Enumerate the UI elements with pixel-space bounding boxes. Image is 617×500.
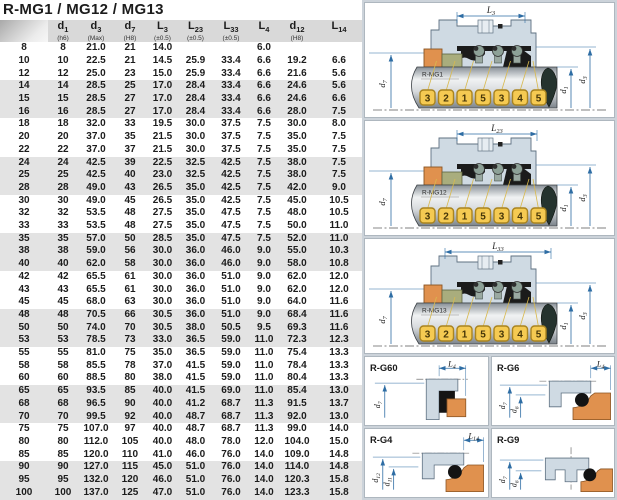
table-cell: 18	[48, 118, 78, 131]
table-cell: 35.0	[179, 195, 212, 208]
row-size-cell: 14	[0, 80, 48, 93]
table-cell: 65.5	[78, 271, 114, 284]
table-cell: 14	[48, 80, 78, 93]
callout-number: 5	[480, 330, 486, 341]
table-cell: 36.0	[179, 245, 212, 258]
table-cell: 132.0	[78, 474, 114, 487]
dimension-arrow	[569, 305, 574, 312]
table-cell: 81.0	[78, 347, 114, 360]
table-cell: 25.9	[179, 68, 212, 81]
table-cell: 7.5	[250, 233, 278, 246]
table-cell: 25	[114, 80, 146, 93]
table-cell: 36.5	[179, 347, 212, 360]
dimension-arrow	[507, 387, 512, 393]
table-body: 8821.02114.06.0101022.52114.525.933.46.6…	[0, 42, 362, 499]
row-size-cell: 45	[0, 296, 48, 309]
table-cell: 88.5	[78, 372, 114, 385]
table-cell: 57.0	[78, 233, 114, 246]
table-cell: 53.5	[78, 220, 114, 233]
table-row: 202037.03521.530.037.57.535.07.5	[0, 131, 362, 144]
table-row: 8821.02114.06.0	[0, 42, 362, 55]
table-cell: 37.5	[212, 144, 250, 157]
table-cell: 7.5	[250, 220, 278, 233]
table-cell: 12	[48, 68, 78, 81]
table-cell: 42.5	[212, 195, 250, 208]
corner-cell	[0, 20, 48, 42]
table-cell: 70.5	[78, 309, 114, 322]
table-cell: 28.5	[78, 93, 114, 106]
table-cell: 8.0	[316, 118, 362, 131]
table-row: 585885.57837.041.559.011.078.413.3	[0, 360, 362, 373]
table-cell: 58.0	[278, 258, 316, 271]
table-cell: 15.0	[316, 436, 362, 449]
table-cell: 7.5	[250, 144, 278, 157]
table-cell: 39	[114, 157, 146, 170]
table-cell: 36.0	[179, 296, 212, 309]
table-cell: 76.0	[212, 449, 250, 462]
column-header: L23(±0.5)	[179, 20, 212, 42]
table-cell: 76.0	[212, 487, 250, 500]
table-cell: 28	[48, 182, 78, 195]
table-cell: 114.0	[278, 461, 316, 474]
table-cell: 40.0	[146, 385, 179, 398]
table-cell: 104.0	[278, 436, 316, 449]
row-size-cell: 10	[0, 55, 48, 68]
callout-number: 4	[517, 212, 523, 223]
table-cell: 7.5	[316, 144, 362, 157]
dim-label-d6: d6	[509, 480, 520, 487]
row-size-cell: 30	[0, 195, 48, 208]
callout-number: 5	[536, 330, 542, 341]
seat-label: R-G6	[496, 363, 518, 373]
dimension-arrow	[588, 285, 593, 292]
table-cell	[316, 42, 362, 55]
screw-dot	[498, 24, 503, 29]
table-cell: 10.8	[316, 258, 362, 271]
table-cell: 36.0	[179, 258, 212, 271]
table-cell: 15.0	[146, 68, 179, 81]
table-cell: 13.3	[316, 372, 362, 385]
table-row: 656593.58540.041.569.011.085.413.0	[0, 385, 362, 398]
diagram-card-mg13: R-MG133215345L33d7d1d3	[364, 238, 615, 354]
table-cell: 14.0	[146, 42, 179, 55]
callout-number: 4	[517, 94, 523, 105]
table-cell: 25.0	[78, 68, 114, 81]
table-cell: 10.5	[316, 207, 362, 220]
table-row: 181832.03319.530.037.57.530.08.0	[0, 118, 362, 131]
table-row: 535378.57333.036.559.011.072.312.3	[0, 334, 362, 347]
dim-label-d7: d7	[377, 197, 389, 205]
table-cell: 42.5	[212, 169, 250, 182]
seat-label: R-G9	[496, 435, 518, 445]
table-cell: 20	[48, 131, 78, 144]
table-cell: 7.5	[250, 118, 278, 131]
table-cell: 19.2	[278, 55, 316, 68]
diagram-card-g60: R-G60L4d7	[364, 356, 489, 426]
table-cell: 35.0	[179, 233, 212, 246]
table-cell: 27.5	[146, 207, 179, 220]
table-row: 424265.56130.036.051.09.062.012.0	[0, 271, 362, 284]
dim-label-d3: d3	[577, 312, 589, 319]
table-row: 353557.05028.535.047.57.552.011.0	[0, 233, 362, 246]
table-cell: 59.0	[212, 334, 250, 347]
o-ring	[448, 465, 462, 479]
dimension-arrow	[445, 250, 452, 255]
table-cell: 15.8	[316, 474, 362, 487]
table-cell: 21.5	[146, 144, 179, 157]
table-cell: 120	[114, 474, 146, 487]
row-size-cell: 85	[0, 449, 48, 462]
table-cell: 6.0	[250, 42, 278, 55]
table-cell: 7.5	[250, 131, 278, 144]
row-size-cell: 55	[0, 347, 48, 360]
table-cell: 42.5	[78, 157, 114, 170]
table-cell: 76.0	[212, 474, 250, 487]
table-cell: 76.0	[212, 461, 250, 474]
table-cell: 37.5	[212, 118, 250, 131]
callout-number: 1	[462, 212, 468, 223]
table-cell: 35.0	[146, 347, 179, 360]
table-cell: 48.0	[278, 207, 316, 220]
table-cell: 96.5	[78, 398, 114, 411]
table-cell: 11.0	[316, 233, 362, 246]
row-size-cell: 95	[0, 474, 48, 487]
table-cell: 95	[48, 474, 78, 487]
table-cell: 35.0	[278, 144, 316, 157]
diagram-card-mg1: R-MG13215345L3d7d1d3	[364, 2, 615, 118]
gland	[545, 458, 588, 482]
dim-label-d11: d11	[383, 477, 394, 486]
screw-dot	[498, 142, 503, 147]
table-cell: 74.0	[78, 322, 114, 335]
table-cell: 43	[114, 182, 146, 195]
dim-label-d1: d1	[558, 86, 570, 93]
row-size-cell: 70	[0, 411, 48, 424]
dim-label-d7: d7	[373, 400, 384, 408]
table-cell: 112.0	[78, 436, 114, 449]
table-cell: 110	[114, 449, 146, 462]
table-cell: 49.0	[78, 182, 114, 195]
column-header: L33(±0.5)	[212, 20, 250, 42]
table-cell: 40.0	[146, 436, 179, 449]
row-size-cell: 40	[0, 258, 48, 271]
table-cell	[278, 42, 316, 55]
table-cell: 69.3	[278, 322, 316, 335]
table-cell: 46.0	[146, 474, 179, 487]
table-cell: 50.0	[278, 220, 316, 233]
table-cell: 21.0	[78, 42, 114, 55]
table-cell: 11.6	[316, 296, 362, 309]
table-cell: 45	[114, 195, 146, 208]
set-screw	[478, 256, 493, 269]
table-cell: 9.0	[250, 258, 278, 271]
table-cell: 17.0	[146, 106, 179, 119]
table-cell: 28.4	[179, 106, 212, 119]
table-cell: 68.7	[212, 398, 250, 411]
table-cell: 40.0	[146, 398, 179, 411]
table-cell: 33.4	[212, 55, 250, 68]
table-row: 9090127.011545.051.076.014.0114.014.8	[0, 461, 362, 474]
table-row: 7575107.09740.048.768.711.399.014.0	[0, 423, 362, 436]
table-cell: 38.0	[278, 157, 316, 170]
callout-number: 3	[425, 212, 431, 223]
table-cell: 9.0	[250, 296, 278, 309]
table-section: R-MG1 / MG12 / MG13 d1(h6)d3(Max)d7(H8)L…	[0, 0, 362, 500]
table-cell: 93.5	[78, 385, 114, 398]
row-size-cell: 58	[0, 360, 48, 373]
table-cell: 42.5	[212, 157, 250, 170]
table-cell: 80	[114, 372, 146, 385]
column-header: L14	[316, 20, 362, 42]
table-cell: 55	[48, 347, 78, 360]
table-cell: 48	[114, 207, 146, 220]
table-cell: 6.6	[250, 106, 278, 119]
table-cell: 30.0	[146, 284, 179, 297]
row-size-cell: 48	[0, 309, 48, 322]
spring-cap	[512, 164, 517, 169]
table-cell: 27.5	[146, 220, 179, 233]
table-row: 707099.59240.048.768.711.392.013.0	[0, 411, 362, 424]
table-cell: 85	[48, 449, 78, 462]
column-header: d1(h6)	[48, 20, 78, 42]
table-cell: 125	[114, 487, 146, 500]
table-cell: 21.5	[146, 131, 179, 144]
table-cell: 70	[48, 411, 78, 424]
table-cell: 7.5	[250, 157, 278, 170]
table-cell: 58	[48, 360, 78, 373]
dim-label-L3: L3	[486, 5, 496, 17]
table-cell: 51.0	[179, 487, 212, 500]
table-cell: 11.3	[250, 423, 278, 436]
table-cell: 80.4	[278, 372, 316, 385]
table-cell: 7.5	[250, 195, 278, 208]
table-cell: 6.6	[250, 93, 278, 106]
table-cell: 35	[114, 131, 146, 144]
table-cell: 32.0	[78, 118, 114, 131]
table-row: 100100137.012547.051.076.014.0123.315.8	[0, 487, 362, 500]
table-cell: 107.0	[78, 423, 114, 436]
table-cell: 5.6	[316, 68, 362, 81]
table-cell: 50	[114, 233, 146, 246]
table-cell: 90	[48, 461, 78, 474]
row-size-cell: 53	[0, 334, 48, 347]
table-cell: 11.3	[250, 411, 278, 424]
dimension-arrow	[389, 173, 394, 180]
table-cell: 38.0	[278, 169, 316, 182]
table-row: 505074.07030.538.050.59.569.311.6	[0, 322, 362, 335]
column-header: L3(±0.5)	[146, 20, 179, 42]
table-cell: 40.0	[146, 411, 179, 424]
table-cell: 32.5	[179, 157, 212, 170]
table-cell: 75	[48, 423, 78, 436]
dimension-arrow	[389, 291, 394, 298]
table-cell: 40	[114, 169, 146, 182]
table-cell: 24	[48, 157, 78, 170]
table-cell: 25.9	[179, 55, 212, 68]
table-cell: 41.5	[179, 360, 212, 373]
table-cell: 13.3	[316, 360, 362, 373]
table-cell: 97	[114, 423, 146, 436]
table-cell: 68.7	[212, 423, 250, 436]
table-cell: 115	[114, 461, 146, 474]
table-cell	[212, 42, 250, 55]
table-cell: 78.4	[278, 360, 316, 373]
table-row: 383859.05630.036.046.09.055.010.3	[0, 245, 362, 258]
table-cell: 48.7	[179, 411, 212, 424]
column-header: d12(H8)	[278, 20, 316, 42]
table-cell: 14.8	[316, 449, 362, 462]
table-cell: 11.0	[250, 385, 278, 398]
dimension-arrow	[518, 473, 523, 479]
column-header: d3(Max)	[78, 20, 114, 42]
table-cell: 58	[114, 258, 146, 271]
seat-label: R-G60	[370, 363, 398, 373]
table-cell: 30.0	[146, 245, 179, 258]
callout-number: 1	[462, 330, 468, 341]
row-size-cell: 65	[0, 385, 48, 398]
dimension-arrow	[457, 14, 464, 19]
table-cell: 30.5	[146, 322, 179, 335]
table-cell: 61	[114, 284, 146, 297]
table-cell: 63	[114, 296, 146, 309]
dimension-arrow	[389, 55, 394, 62]
diagram-card-g4: R-G4L14d12d11	[364, 428, 489, 498]
table-cell: 41.0	[146, 449, 179, 462]
table-cell: 11.6	[316, 309, 362, 322]
table-cell: 25	[48, 169, 78, 182]
dim-label-d7: d7	[497, 401, 508, 409]
table-cell: 105	[114, 436, 146, 449]
row-size-cell: 75	[0, 423, 48, 436]
table-cell: 6.6	[250, 55, 278, 68]
dimension-arrow	[439, 366, 445, 371]
callout-number: 3	[425, 330, 431, 341]
table-cell: 13.3	[316, 347, 362, 360]
table-cell: 53.5	[78, 207, 114, 220]
table-cell: 47.5	[212, 233, 250, 246]
table-cell: 65.5	[78, 284, 114, 297]
table-row: 141428.52517.028.433.46.624.65.6	[0, 80, 362, 93]
row-size-cell: 20	[0, 131, 48, 144]
table-row: 282849.04326.535.042.57.542.09.0	[0, 182, 362, 195]
table-cell: 11.0	[250, 334, 278, 347]
dim-label-d7: d7	[497, 475, 508, 483]
table-cell: 30.0	[179, 144, 212, 157]
table-cell: 27	[114, 106, 146, 119]
diagram-r-g4: R-G4L14d12d11	[365, 429, 488, 497]
table-cell: 64.0	[278, 296, 316, 309]
dimension-arrow	[519, 14, 526, 19]
table-cell: 35	[48, 233, 78, 246]
table-cell: 62.0	[278, 284, 316, 297]
shaft-label: R-MG13	[422, 308, 447, 315]
table-cell: 69.0	[212, 385, 250, 398]
screw-dot	[498, 260, 503, 265]
table-cell: 24.6	[278, 93, 316, 106]
table-cell: 28.5	[78, 80, 114, 93]
table-cell: 38.0	[146, 372, 179, 385]
table-cell: 41.2	[179, 398, 212, 411]
row-size-cell: 42	[0, 271, 48, 284]
table-row: 484870.56630.536.051.09.068.411.6	[0, 309, 362, 322]
table-cell: 28.5	[146, 233, 179, 246]
table-cell: 45.0	[278, 195, 316, 208]
set-screw	[478, 138, 493, 151]
dimension-arrow	[507, 462, 512, 468]
table-cell: 65	[48, 385, 78, 398]
table-cell: 28.0	[278, 106, 316, 119]
table-cell: 40.0	[146, 423, 179, 436]
dimension-arrow	[391, 469, 396, 475]
table-cell: 10.5	[316, 195, 362, 208]
callout-number: 2	[443, 212, 449, 223]
table-cell: 9.5	[250, 322, 278, 335]
table-cell: 137.0	[78, 487, 114, 500]
table-cell: 11.0	[250, 360, 278, 373]
table-cell: 92	[114, 411, 146, 424]
row-size-cell: 8	[0, 42, 48, 55]
spring-cap	[474, 164, 479, 169]
dimension-arrow	[459, 366, 465, 371]
dimension-arrow	[588, 167, 593, 174]
table-cell: 55.0	[278, 245, 316, 258]
spring-cap	[493, 282, 498, 287]
table-cell: 22.5	[78, 55, 114, 68]
table-cell: 85.5	[78, 360, 114, 373]
table-cell: 36.0	[179, 309, 212, 322]
table-row: 9595132.012046.051.076.014.0120.315.8	[0, 474, 362, 487]
diagram-card-g9: R-G9d7d6	[491, 428, 616, 498]
table-cell: 45.0	[146, 461, 179, 474]
table-cell: 23	[114, 68, 146, 81]
table-cell: 52.0	[278, 233, 316, 246]
spring-cap	[474, 46, 479, 51]
table-cell: 49.0	[78, 195, 114, 208]
table-cell: 15.8	[316, 487, 362, 500]
row-size-cell: 100	[0, 487, 48, 500]
table-cell: 26.5	[146, 182, 179, 195]
table-row: 434365.56130.036.051.09.062.012.0	[0, 284, 362, 297]
table-cell: 22.5	[146, 157, 179, 170]
table-cell: 9.0	[250, 245, 278, 258]
table-cell: 30.0	[179, 118, 212, 131]
table-cell: 38	[48, 245, 78, 258]
row-size-cell: 50	[0, 322, 48, 335]
row-size-cell: 32	[0, 207, 48, 220]
row-size-cell: 33	[0, 220, 48, 233]
table-cell: 28.5	[78, 106, 114, 119]
table-cell: 41.5	[179, 372, 212, 385]
column-header: d7(H8)	[114, 20, 146, 42]
table-cell: 11.0	[250, 372, 278, 385]
table-row: 323253.54827.535.047.57.548.010.5	[0, 207, 362, 220]
table-cell: 30.0	[278, 118, 316, 131]
table-cell: 51.0	[212, 284, 250, 297]
callout-number: 1	[462, 94, 468, 105]
table-row: 686896.59040.041.268.711.391.513.7	[0, 398, 362, 411]
table-cell: 62.0	[78, 258, 114, 271]
table-cell: 51.0	[179, 461, 212, 474]
seat-diagrams-grid: R-G60L4d7 R-G6L4d7d6 R-G4L14d12d11 R-G9d…	[364, 356, 615, 498]
table-cell: 33.4	[212, 80, 250, 93]
table-row: 8080112.010540.048.078.012.0104.015.0	[0, 436, 362, 449]
table-cell: 46.0	[212, 245, 250, 258]
dim-label-L23: L23	[490, 123, 503, 135]
spring-cap	[512, 282, 517, 287]
table-cell: 47.5	[212, 220, 250, 233]
table-cell: 46.0	[212, 258, 250, 271]
table-cell: 75	[114, 347, 146, 360]
